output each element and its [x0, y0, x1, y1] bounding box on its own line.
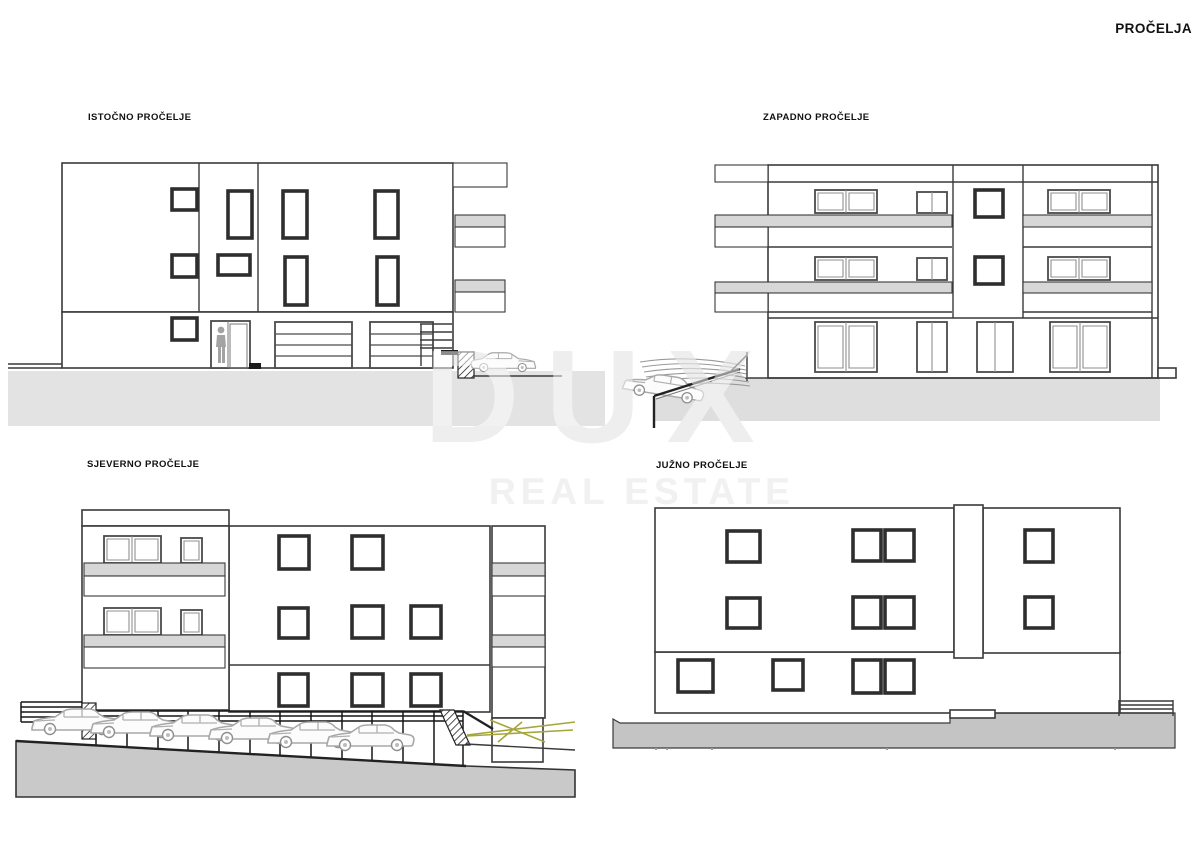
facade-north: [16, 510, 575, 797]
north-stair-tower: [492, 526, 545, 718]
watermark-overlay: DUX REAL ESTATE: [424, 323, 795, 512]
south-ground: [613, 713, 1175, 748]
east-grade-line: [8, 364, 62, 368]
svg-text:REAL ESTATE: REAL ESTATE: [489, 471, 795, 512]
elevations-drawing: DUX REAL ESTATE: [0, 0, 1200, 852]
label-west-facade: ZAPADNO PROČELJE: [763, 111, 870, 123]
label-east-facade: ISTOČNO PROČELJE: [88, 111, 191, 123]
facade-south: [613, 505, 1175, 750]
elevation-sheet: DUX REAL ESTATE: [0, 0, 1200, 852]
label-north-facade: SJEVERNO PROČELJE: [87, 458, 199, 470]
label-south-facade: JUŽNO PROČELJE: [656, 459, 748, 471]
north-ground: [16, 741, 575, 797]
page-title: PROČELJA: [1115, 21, 1192, 36]
east-balcony-slabs: [455, 215, 505, 312]
south-railing: [1119, 700, 1173, 716]
svg-text:DUX: DUX: [424, 323, 781, 470]
